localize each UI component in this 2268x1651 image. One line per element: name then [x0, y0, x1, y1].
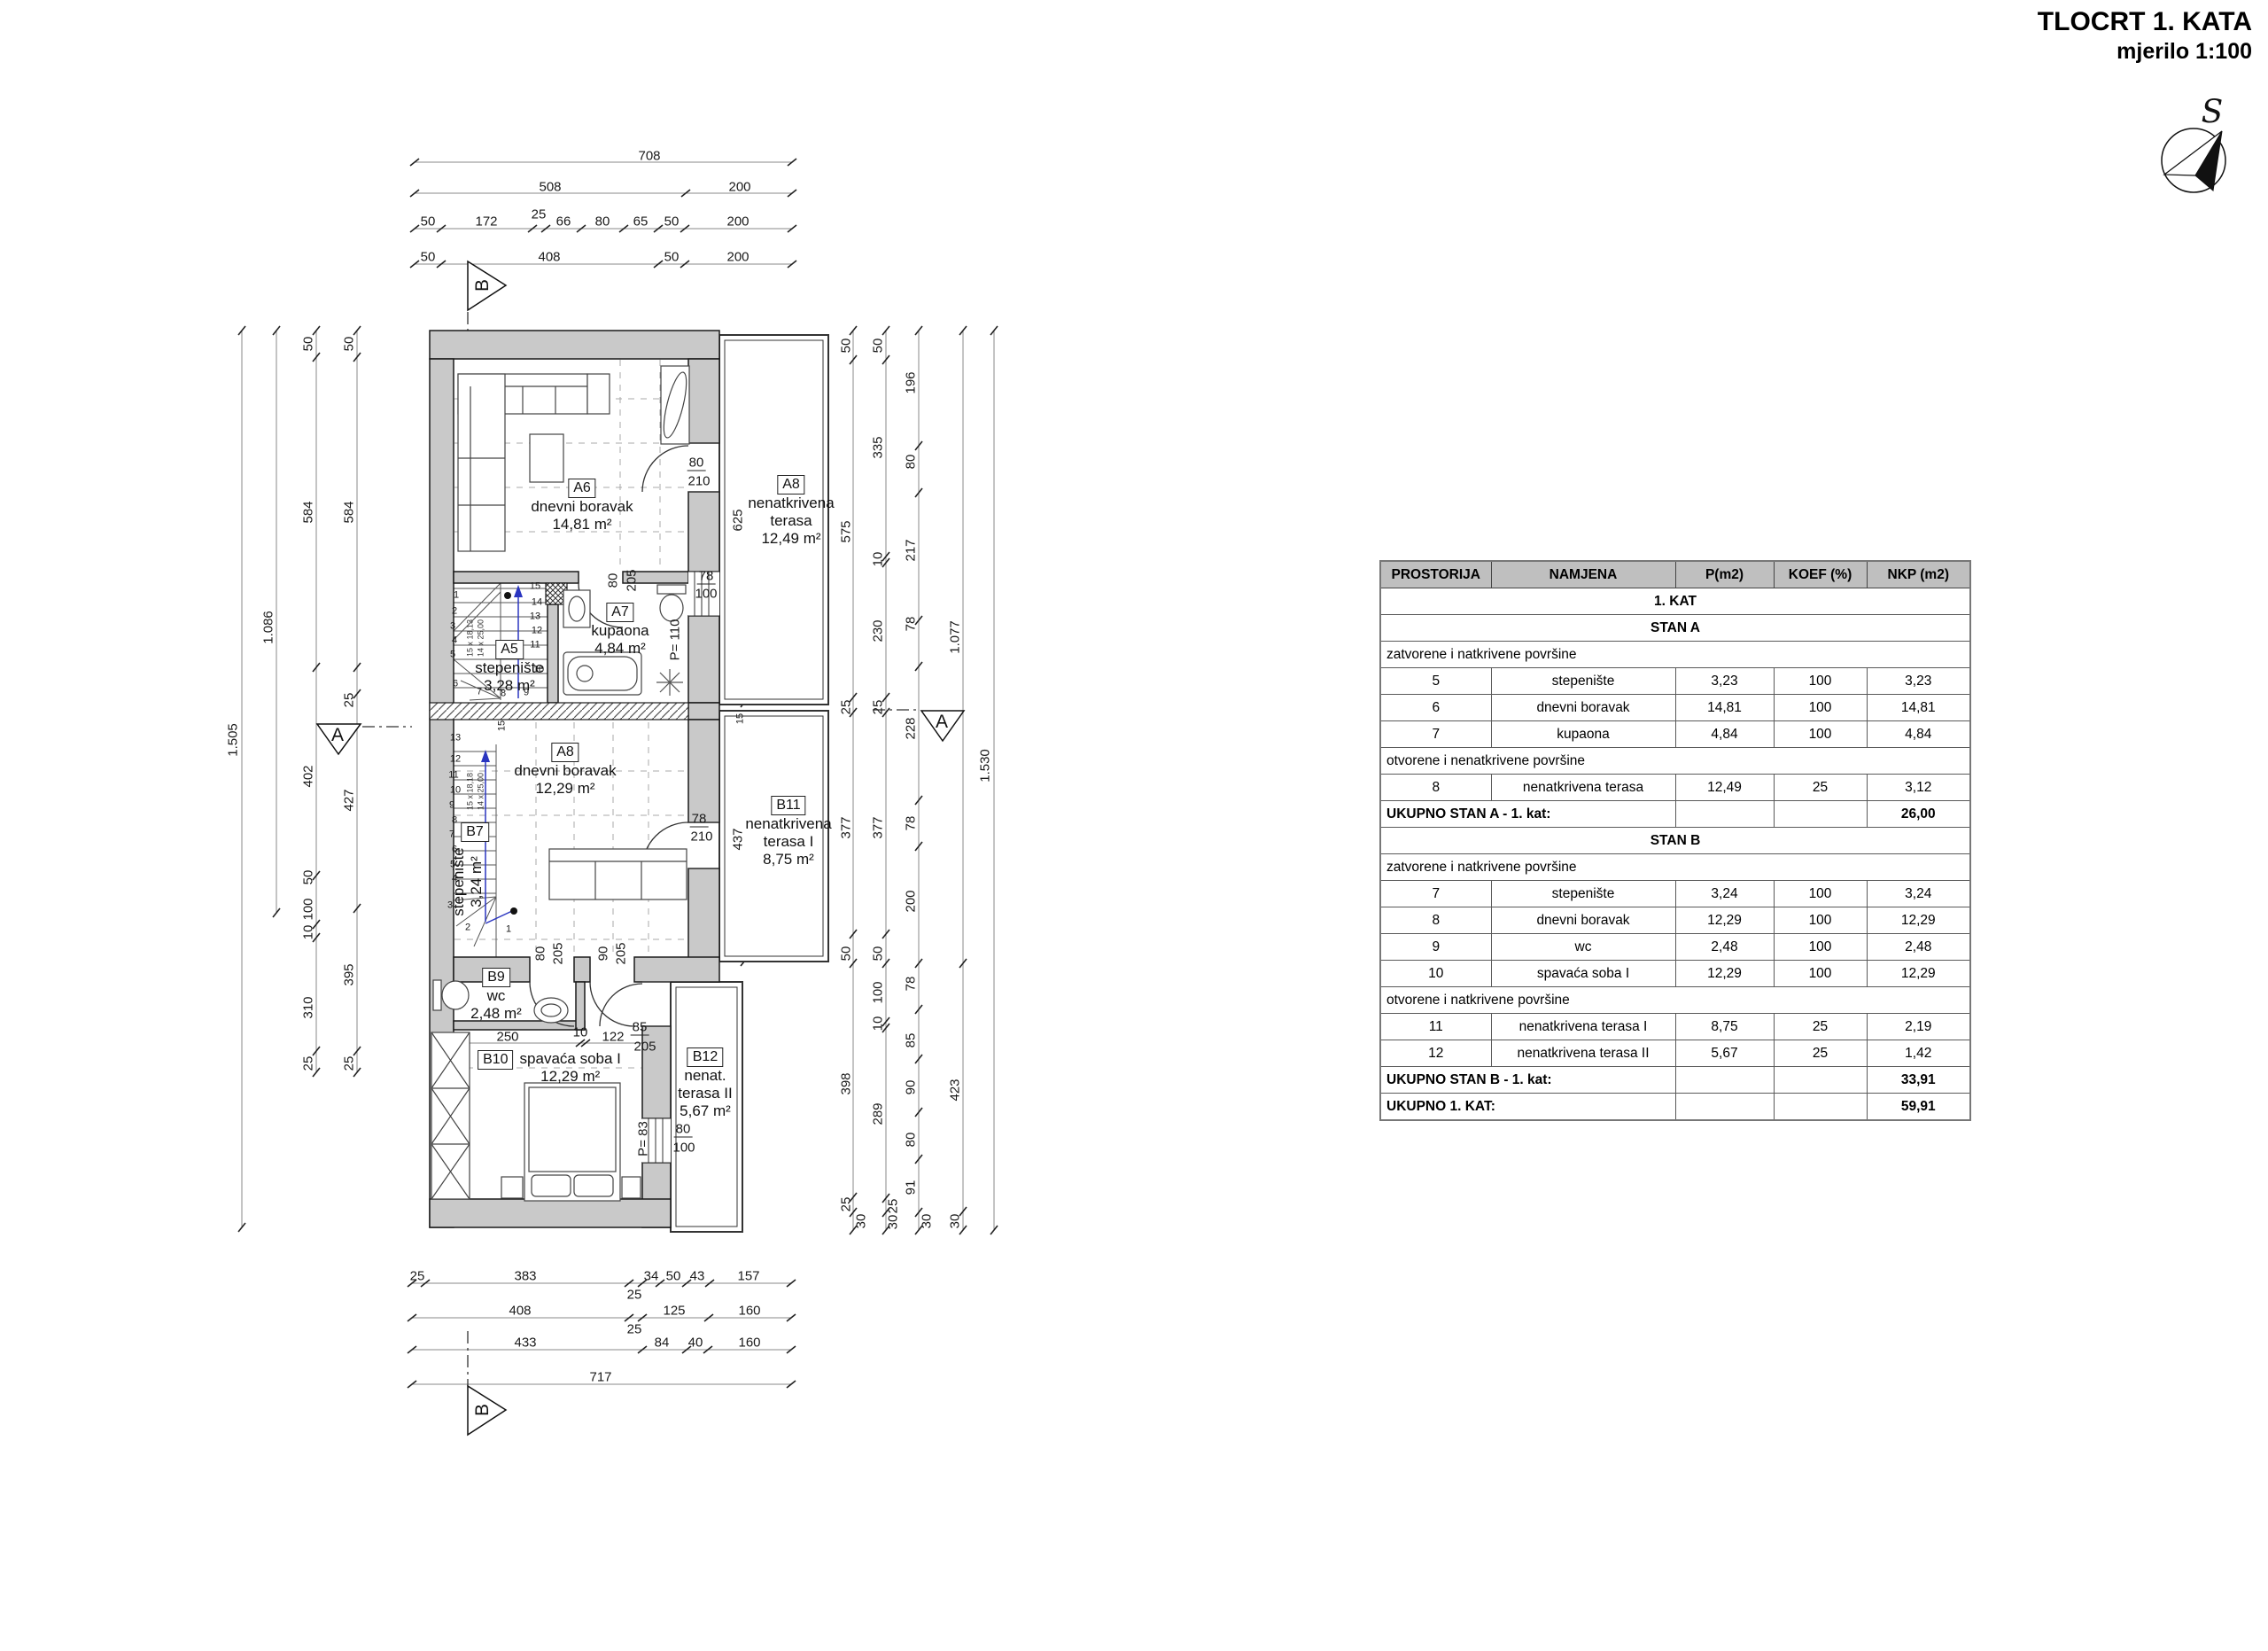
table-cell: stepenište [1491, 881, 1675, 907]
table-cell: otvorene i natkrivene površine [1380, 987, 1970, 1014]
col-header: PROSTORIJA [1380, 561, 1491, 588]
table-row: zatvorene i natkrivene površine [1380, 642, 1970, 668]
table-cell: 12,29 [1675, 961, 1774, 987]
table-cell [1675, 1094, 1774, 1121]
table-cell: kupaona [1491, 721, 1675, 748]
table-cell: 59,91 [1867, 1094, 1970, 1121]
table-cell: STAN A [1380, 615, 1970, 642]
section-hatch-band [430, 703, 688, 720]
table-row: UKUPNO STAN B - 1. kat:33,91 [1380, 1067, 1970, 1094]
table-cell: 4,84 [1867, 721, 1970, 748]
table-row: 5stepenište3,231003,23 [1380, 668, 1970, 695]
table-cell: dnevni boravak [1491, 695, 1675, 721]
table-cell: 26,00 [1867, 801, 1970, 828]
area-table: PROSTORIJANAMJENAP(m2)KOEF (%)NKP (m2) 1… [1379, 560, 1971, 1121]
table-cell: 3,23 [1675, 668, 1774, 695]
table-row: 7stepenište3,241003,24 [1380, 881, 1970, 907]
table-cell: 100 [1774, 695, 1867, 721]
table-cell [1774, 1067, 1867, 1094]
table-cell [1675, 801, 1774, 828]
wardrobe-b10 [431, 1032, 470, 1199]
coffee-table [530, 434, 563, 482]
table-cell: 12,49 [1675, 775, 1774, 801]
table-row: UKUPNO 1. KAT:59,91 [1380, 1094, 1970, 1121]
table-row: 7kupaona4,841004,84 [1380, 721, 1970, 748]
table-cell: 3,24 [1867, 881, 1970, 907]
table-cell: 12,29 [1867, 961, 1970, 987]
table-cell: 25 [1774, 1014, 1867, 1040]
table-cell: zatvorene i natkrivene površine [1380, 854, 1970, 881]
table-cell: 12,29 [1675, 907, 1774, 934]
table-cell: 12 [1380, 1040, 1491, 1067]
table-row: 6dnevni boravak14,8110014,81 [1380, 695, 1970, 721]
table-cell: 14,81 [1675, 695, 1774, 721]
title-block: TLOCRT 1. KATA mjerilo 1:100 [2038, 7, 2252, 66]
table-row: 8nenatkrivena terasa12,49253,12 [1380, 775, 1970, 801]
table-cell: 3,24 [1675, 881, 1774, 907]
table-cell: 4,84 [1675, 721, 1774, 748]
table-cell: 5,67 [1675, 1040, 1774, 1067]
table-row: 12nenatkrivena terasa II5,67251,42 [1380, 1040, 1970, 1067]
table-row: 9wc2,481002,48 [1380, 934, 1970, 961]
table-cell: 11 [1380, 1014, 1491, 1040]
table-cell: spavaća soba I [1491, 961, 1675, 987]
table-cell: 8,75 [1675, 1014, 1774, 1040]
table-row: UKUPNO STAN A - 1. kat:26,00 [1380, 801, 1970, 828]
table-row: STAN B [1380, 828, 1970, 854]
table-cell: 1. KAT [1380, 588, 1970, 615]
table-cell: 7 [1380, 721, 1491, 748]
table-cell: nenatkrivena terasa I [1491, 1014, 1675, 1040]
table-cell: 8 [1380, 775, 1491, 801]
table-cell: 100 [1774, 934, 1867, 961]
table-cell: 2,48 [1675, 934, 1774, 961]
table-cell: 2,48 [1867, 934, 1970, 961]
table-cell: otvorene i nenatkrivene površine [1380, 748, 1970, 775]
col-header: NKP (m2) [1867, 561, 1970, 588]
stairs-b7 [454, 744, 517, 957]
table-cell: 100 [1774, 721, 1867, 748]
table-cell [1774, 801, 1867, 828]
col-header: NAMJENA [1491, 561, 1675, 588]
table-cell: 5 [1380, 668, 1491, 695]
north-arrow [2162, 128, 2225, 192]
table-cell [1774, 1094, 1867, 1121]
bathroom-fixtures [563, 585, 686, 696]
table-row: zatvorene i natkrivene površine [1380, 854, 1970, 881]
table-cell: stepenište [1491, 668, 1675, 695]
table-cell: 12,29 [1867, 907, 1970, 934]
table-row: 8dnevni boravak12,2910012,29 [1380, 907, 1970, 934]
table-cell: 100 [1774, 961, 1867, 987]
table-cell: nenatkrivena terasa [1491, 775, 1675, 801]
table-cell: 9 [1380, 934, 1491, 961]
col-header: KOEF (%) [1774, 561, 1867, 588]
table-cell: dnevni boravak [1491, 907, 1675, 934]
compass-north-letter: S [2202, 95, 2224, 131]
section-marker-triangles [317, 261, 964, 1435]
shelf-a6 [659, 366, 691, 444]
table-cell: 7 [1380, 881, 1491, 907]
table-cell: 25 [1774, 775, 1867, 801]
table-row: otvorene i nenatkrivene površine [1380, 748, 1970, 775]
table-cell [1675, 1067, 1774, 1094]
table-header-row: PROSTORIJANAMJENAP(m2)KOEF (%)NKP (m2) [1380, 561, 1970, 588]
table-cell: wc [1491, 934, 1675, 961]
table-row: 1. KAT [1380, 588, 1970, 615]
table-cell: 8 [1380, 907, 1491, 934]
sheet-title: TLOCRT 1. KATA [2038, 7, 2252, 37]
table-cell: STAN B [1380, 828, 1970, 854]
table-cell: UKUPNO 1. KAT: [1380, 1094, 1675, 1121]
table-cell: 2,19 [1867, 1014, 1970, 1040]
table-cell: zatvorene i natkrivene površine [1380, 642, 1970, 668]
table-cell: 100 [1774, 668, 1867, 695]
table-row: otvorene i natkrivene površine [1380, 987, 1970, 1014]
col-header: P(m2) [1675, 561, 1774, 588]
bed-b10 [501, 1083, 641, 1201]
table-cell: UKUPNO STAN A - 1. kat: [1380, 801, 1675, 828]
table-row: 10spavaća soba I12,2910012,29 [1380, 961, 1970, 987]
table-cell: nenatkrivena terasa II [1491, 1040, 1675, 1067]
table-cell: 10 [1380, 961, 1491, 987]
table-cell: 1,42 [1867, 1040, 1970, 1067]
table-cell: 14,81 [1867, 695, 1970, 721]
table-cell: 3,12 [1867, 775, 1970, 801]
floor-plan-sheet: 7085082005017225668065502005040850200253… [0, 0, 2268, 1651]
sheet-scale: mjerilo 1:100 [2038, 37, 2252, 66]
table-cell: 100 [1774, 881, 1867, 907]
table-cell: 33,91 [1867, 1067, 1970, 1094]
sofa-a8 [549, 849, 687, 899]
table-row: 11nenatkrivena terasa I8,75252,19 [1380, 1014, 1970, 1040]
table-row: STAN A [1380, 615, 1970, 642]
table-cell: UKUPNO STAN B - 1. kat: [1380, 1067, 1675, 1094]
stairs-a5 [454, 583, 548, 700]
table-cell: 100 [1774, 907, 1867, 934]
table-cell: 3,23 [1867, 668, 1970, 695]
table-cell: 6 [1380, 695, 1491, 721]
table-cell: 25 [1774, 1040, 1867, 1067]
plant-icon [656, 669, 683, 696]
